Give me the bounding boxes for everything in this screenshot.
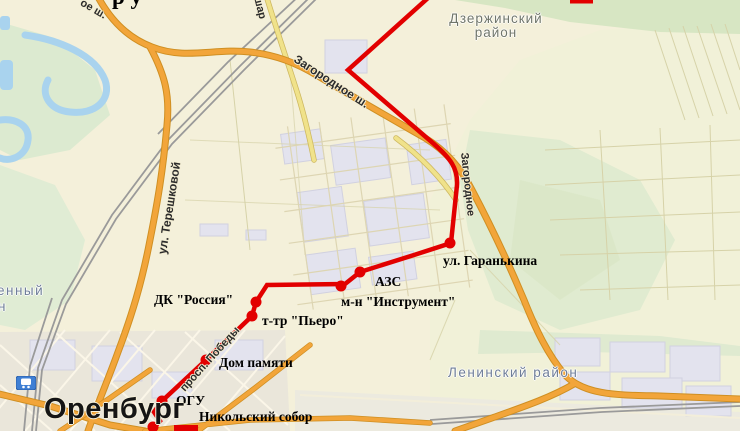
stop-label-instrument: м-н "Инструмент" (341, 294, 455, 310)
district-label-fragment-1: енный (0, 283, 44, 298)
stop-marker-instrument (336, 281, 347, 292)
stop-label-nikolsky-sobor: Никольский собор (199, 409, 312, 425)
railway-station-icon (16, 376, 36, 390)
stop-marker-garankina (445, 238, 456, 249)
city-route-map: р у Дзержинский район Ленинский район ен… (0, 0, 740, 431)
stop-label-azs: АЗС (375, 274, 401, 290)
city-label: Оренбург (44, 393, 185, 426)
stop-label-piero: т-тр "Пьеро" (262, 313, 344, 329)
stop-label-dom-pamyati: Дом памяти (219, 355, 293, 371)
stop-marker-piero (247, 311, 258, 322)
district-label-fragment-2: н (0, 299, 6, 314)
map-canvas (0, 0, 740, 431)
stop-label-garankina: ул. Гаранькина (443, 253, 537, 269)
stop-marker-azs (355, 267, 366, 278)
district-label-dzerzhinsky: Дзержинский район (430, 12, 562, 40)
stop-label-dk-rossiya: ДК "Россия" (154, 292, 233, 308)
district-label-leninsky: Ленинский район (448, 365, 578, 380)
stop-marker-dk-rossiya (251, 297, 262, 308)
cropped-title-fragment: р у (112, 0, 142, 10)
route-marker-top-right (570, 0, 593, 4)
